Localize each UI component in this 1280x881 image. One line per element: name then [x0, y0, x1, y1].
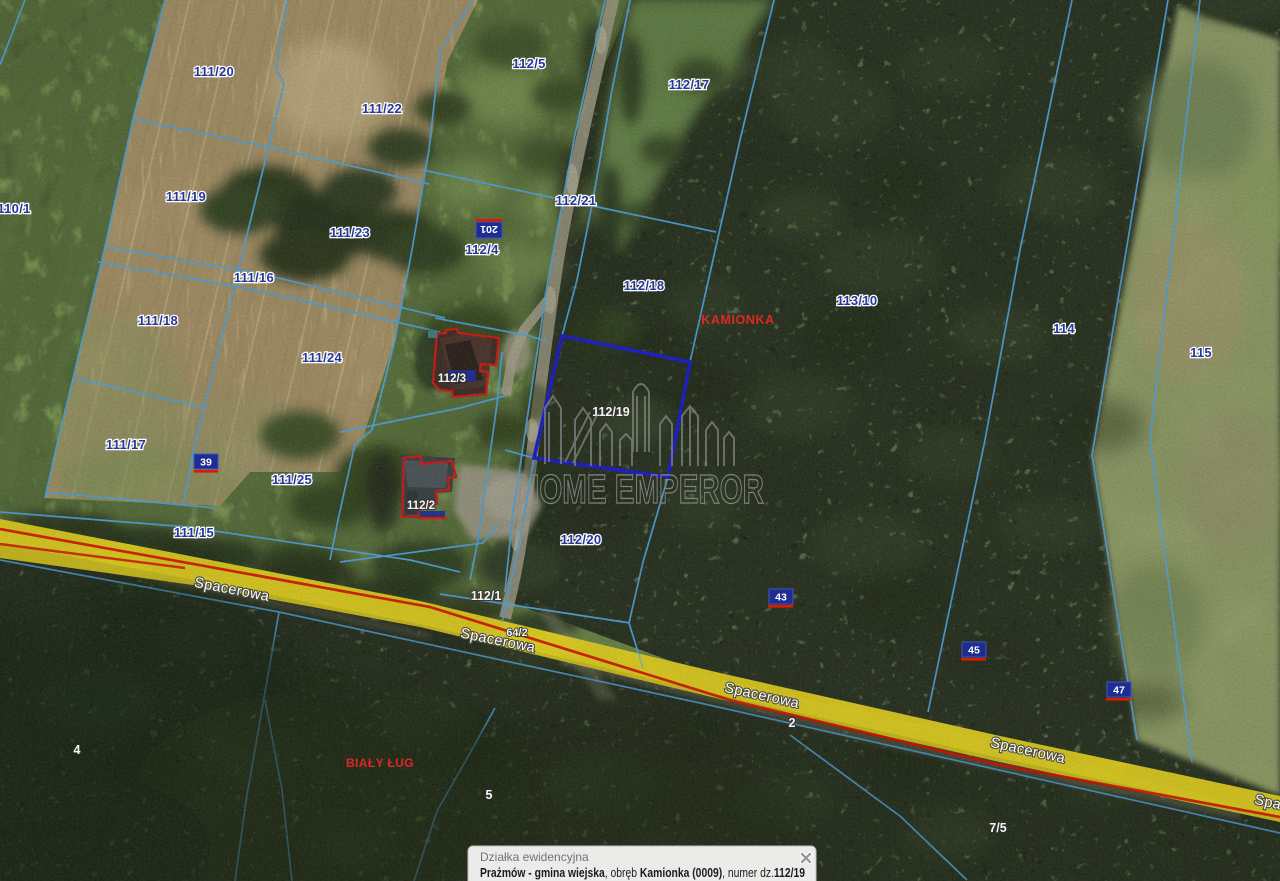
- svg-text:111/25: 111/25: [272, 472, 312, 487]
- svg-text:112/1: 112/1: [471, 589, 502, 603]
- svg-text:45: 45: [968, 645, 980, 657]
- svg-text:7/5: 7/5: [989, 821, 1006, 835]
- svg-text:115: 115: [1190, 345, 1212, 360]
- svg-text:201: 201: [480, 223, 498, 235]
- svg-text:111/22: 111/22: [362, 101, 402, 116]
- svg-text:112/19: 112/19: [592, 405, 630, 419]
- svg-text:112/3: 112/3: [438, 373, 466, 385]
- svg-text:Prażmów - gmina wiejska, obręb: Prażmów - gmina wiejska, obręb Kamionka …: [480, 865, 805, 880]
- svg-text:2: 2: [789, 716, 796, 730]
- svg-text:BIAŁY ŁUG: BIAŁY ŁUG: [346, 756, 414, 770]
- svg-text:111/15: 111/15: [174, 525, 214, 540]
- svg-text:111/23: 111/23: [330, 225, 370, 240]
- svg-text:110/1: 110/1: [0, 201, 31, 216]
- svg-text:Działka ewidencyjna: Działka ewidencyjna: [480, 850, 589, 864]
- svg-text:112/4: 112/4: [465, 242, 499, 257]
- svg-text:47: 47: [1113, 685, 1125, 697]
- svg-text:113/10: 113/10: [837, 293, 878, 308]
- svg-text:111/19: 111/19: [166, 189, 206, 204]
- svg-text:KAMIONKA: KAMIONKA: [701, 313, 775, 327]
- svg-text:111/18: 111/18: [138, 313, 178, 328]
- svg-text:112/21: 112/21: [556, 193, 597, 208]
- svg-text:111/24: 111/24: [302, 350, 343, 365]
- svg-text:111/17: 111/17: [106, 437, 146, 452]
- svg-text:4: 4: [74, 743, 81, 757]
- svg-text:114: 114: [1053, 321, 1075, 336]
- svg-text:112/5: 112/5: [512, 56, 545, 71]
- svg-text:112/18: 112/18: [624, 278, 665, 293]
- svg-text:111/20: 111/20: [194, 64, 234, 79]
- svg-text:112/20: 112/20: [561, 532, 602, 547]
- svg-text:5: 5: [486, 788, 493, 802]
- svg-text:111/16: 111/16: [234, 270, 274, 285]
- svg-text:43: 43: [775, 592, 787, 604]
- svg-text:39: 39: [200, 457, 212, 469]
- svg-text:112/2: 112/2: [407, 500, 435, 512]
- svg-text:HOME EMPEROR: HOME EMPEROR: [518, 466, 764, 512]
- svg-text:112/17: 112/17: [669, 77, 710, 92]
